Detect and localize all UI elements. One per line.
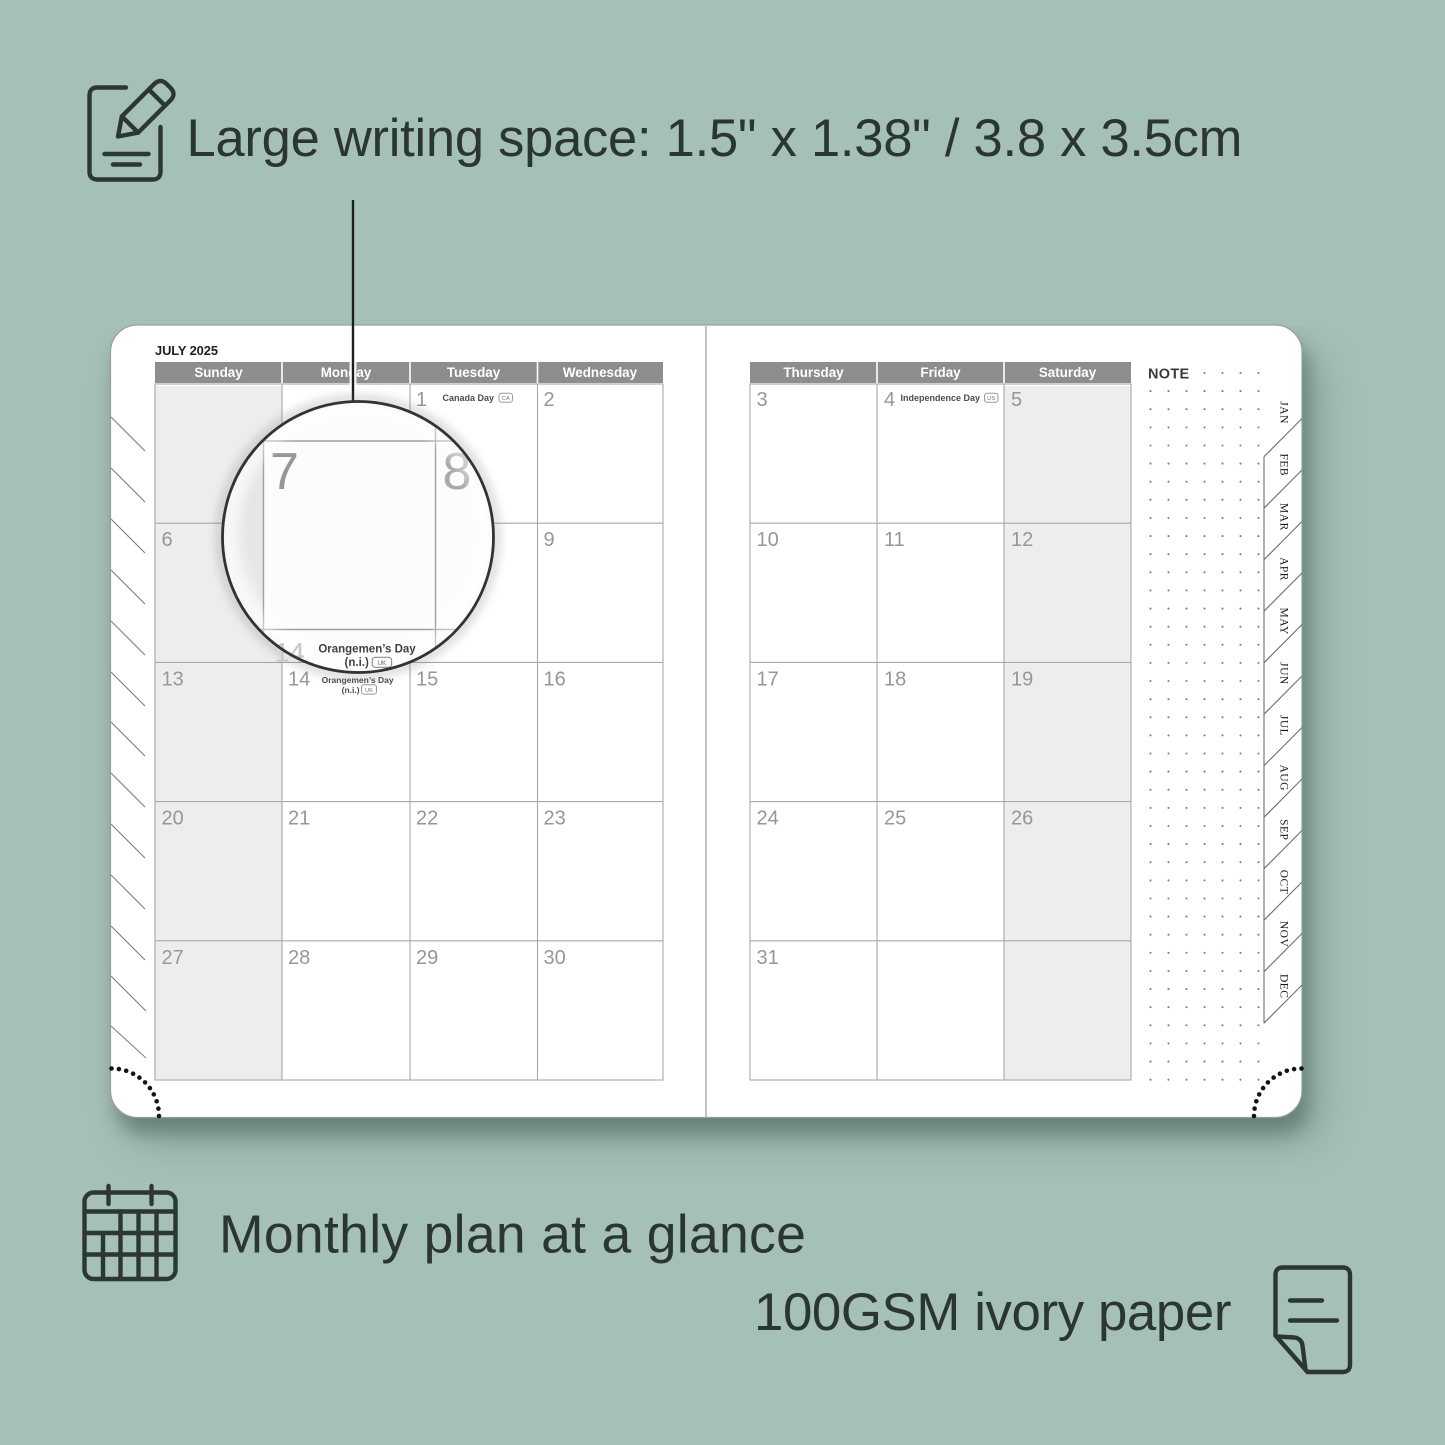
svg-text:1: 1 [416, 389, 427, 411]
svg-text:10: 10 [757, 529, 779, 551]
svg-text:100GSM ivory paper: 100GSM ivory paper [754, 1283, 1231, 1342]
svg-text:Tuesday: Tuesday [447, 365, 501, 380]
svg-text:22: 22 [416, 808, 438, 830]
svg-text:Thursday: Thursday [783, 365, 844, 380]
svg-text:SEP: SEP [1278, 819, 1290, 840]
svg-text:UK: UK [378, 660, 387, 667]
svg-text:5: 5 [1011, 389, 1022, 411]
svg-text:31: 31 [757, 947, 779, 969]
svg-text:(n.i.): (n.i.) [345, 657, 369, 669]
svg-text:Monday: Monday [321, 365, 372, 380]
svg-text:26: 26 [1011, 808, 1033, 830]
svg-text:21: 21 [288, 808, 310, 830]
svg-text:Sunday: Sunday [194, 365, 243, 380]
svg-text:APR: APR [1278, 557, 1290, 581]
svg-text:Wednesday: Wednesday [563, 365, 638, 380]
svg-text:OCT: OCT [1278, 870, 1290, 895]
svg-text:NOTE: NOTE [1148, 367, 1190, 383]
svg-text:UK: UK [365, 688, 373, 694]
svg-text:2: 2 [544, 389, 555, 411]
svg-text:(n.i.): (n.i.) [342, 685, 360, 695]
svg-text:12: 12 [1011, 529, 1033, 551]
svg-text:18: 18 [884, 668, 906, 690]
svg-text:17: 17 [757, 668, 779, 690]
svg-text:Monthly plan at a glance: Monthly plan at a glance [219, 1206, 806, 1265]
svg-text:13: 13 [162, 668, 184, 690]
svg-text:Independence Day: Independence Day [900, 393, 980, 403]
svg-text:25: 25 [884, 808, 906, 830]
svg-text:Canada Day: Canada Day [442, 393, 494, 403]
svg-text:US: US [987, 396, 995, 402]
svg-text:20: 20 [162, 808, 184, 830]
svg-text:15: 15 [416, 668, 438, 690]
svg-text:JULY 2025: JULY 2025 [155, 343, 218, 358]
svg-text:30: 30 [544, 947, 566, 969]
svg-text:MAR: MAR [1278, 503, 1290, 531]
svg-text:23: 23 [544, 808, 566, 830]
svg-text:28: 28 [288, 947, 310, 969]
svg-text:3: 3 [757, 389, 768, 411]
svg-text:JUN: JUN [1278, 662, 1290, 685]
svg-text:27: 27 [162, 947, 184, 969]
svg-text:JAN: JAN [1278, 401, 1290, 424]
svg-text:19: 19 [1011, 668, 1033, 690]
svg-text:9: 9 [544, 529, 555, 551]
svg-text:Orangemen’s Day: Orangemen’s Day [318, 644, 416, 656]
svg-text:DEC: DEC [1278, 974, 1290, 999]
svg-text:MAY: MAY [1278, 608, 1290, 635]
svg-text:29: 29 [416, 947, 438, 969]
svg-text:14: 14 [288, 668, 310, 690]
svg-text:6: 6 [162, 529, 173, 551]
svg-text:AUG: AUG [1278, 764, 1290, 790]
svg-text:Saturday: Saturday [1039, 365, 1097, 380]
svg-text:Large writing space: 1.5" x 1.: Large writing space: 1.5" x 1.38" / 3.8 … [187, 109, 1243, 168]
svg-text:NOV: NOV [1278, 921, 1290, 948]
svg-text:FEB: FEB [1278, 454, 1290, 477]
svg-text:24: 24 [757, 808, 779, 830]
svg-text:16: 16 [544, 668, 566, 690]
svg-text:4: 4 [884, 389, 895, 411]
svg-text:CA: CA [502, 396, 510, 402]
svg-text:11: 11 [884, 529, 905, 551]
svg-text:Friday: Friday [920, 365, 961, 380]
svg-text:JUL: JUL [1278, 715, 1290, 736]
